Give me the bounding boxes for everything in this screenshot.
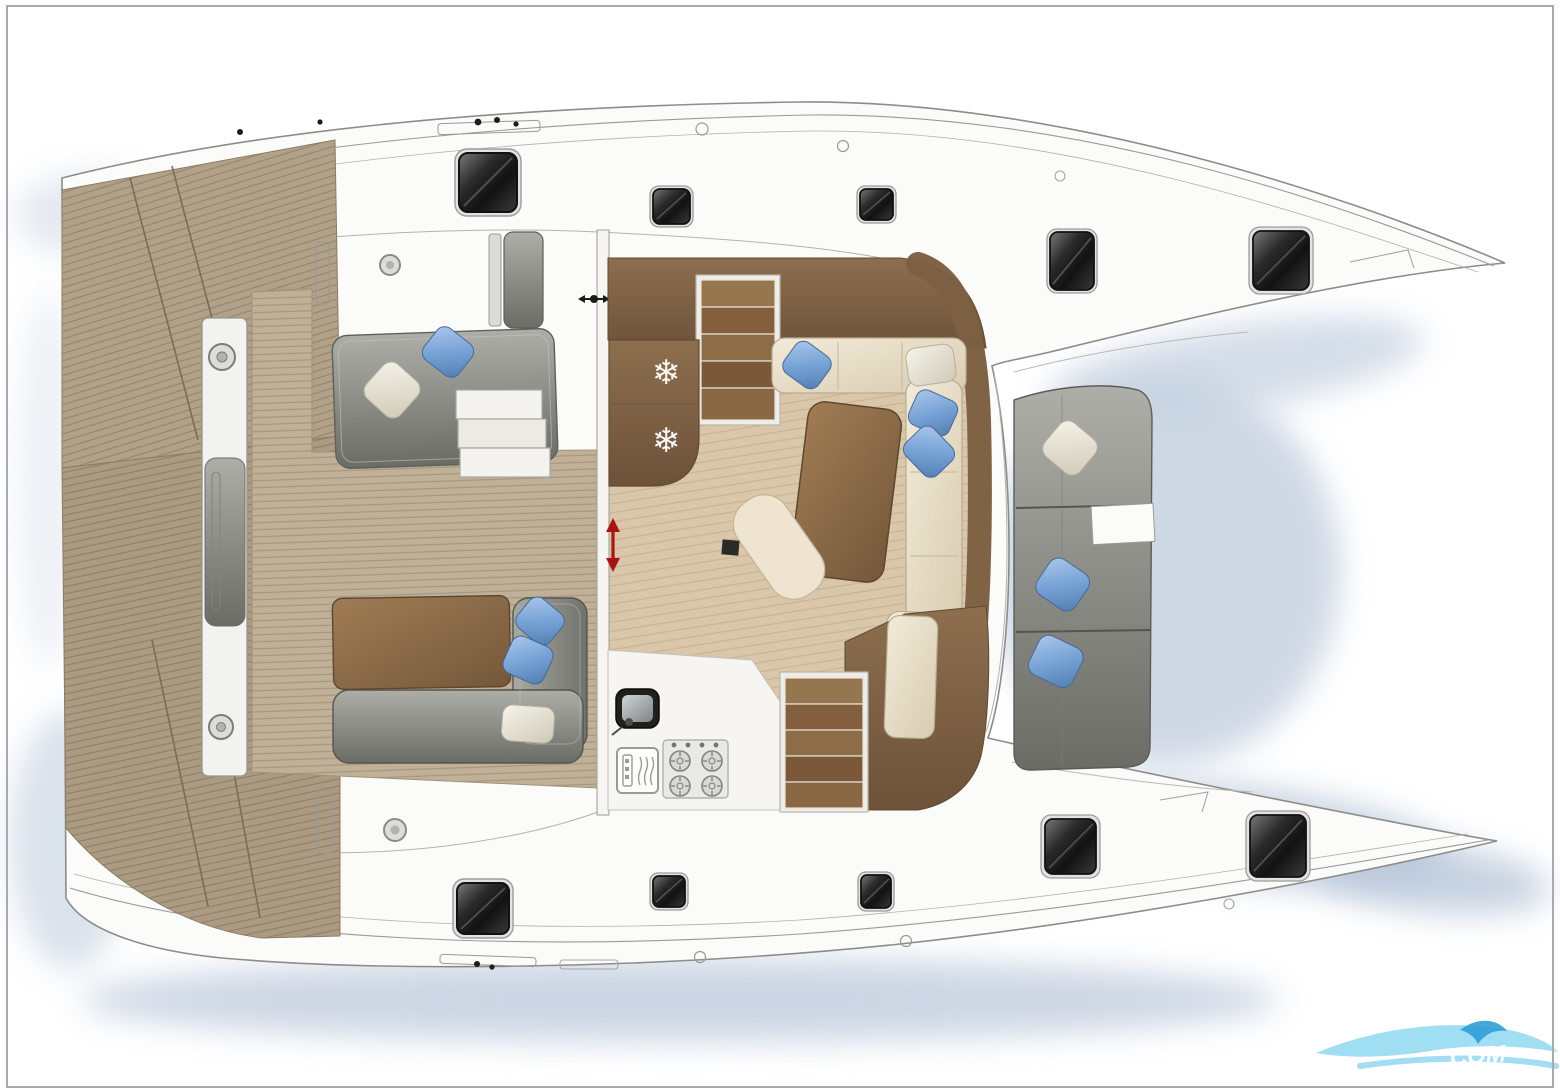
shadow-bottom-hull <box>80 958 1280 1042</box>
helm-bench-cushion <box>504 232 543 328</box>
hatch-window <box>1246 811 1310 881</box>
saloon-lower-bench <box>884 615 938 739</box>
hatch-window <box>857 186 896 223</box>
cockpit-table <box>332 595 511 689</box>
stove-burner-icon <box>702 776 722 796</box>
deck-hatch-ring-bottom <box>384 819 406 841</box>
floor-plan-drawing: Catamaran deck and saloon floor plan (to… <box>0 0 1560 1092</box>
cleat-dot <box>475 119 482 126</box>
cleat-dot <box>237 129 243 135</box>
beam-fitting-bottom <box>209 715 233 739</box>
floor-plan-page: Catamaran deck and saloon floor plan (to… <box>0 0 1560 1092</box>
cleat-dot <box>494 117 500 123</box>
hatch-window <box>1047 229 1097 293</box>
deck-hatch-ring-top <box>380 255 400 275</box>
beam-fitting-top <box>209 344 235 370</box>
cleat-dot <box>474 961 480 967</box>
wave-logo-icon <box>1316 1025 1558 1057</box>
stove-burner-icon <box>670 776 690 796</box>
hatch-window <box>650 873 688 910</box>
white-pillow <box>905 343 958 387</box>
hatch-window <box>650 186 693 227</box>
hatch-window <box>1041 815 1100 878</box>
hatch-window <box>858 872 894 911</box>
cleat-dot <box>317 119 322 124</box>
table-floor-mount <box>721 539 739 555</box>
white-pillow <box>501 704 555 744</box>
seat-notch <box>1091 503 1155 544</box>
stairs-starboard <box>780 672 868 812</box>
stove-burner-icon <box>702 751 722 771</box>
hatch-window <box>1249 227 1313 294</box>
snowflake-icon: ❄ <box>652 353 681 393</box>
stairs-port <box>696 275 780 425</box>
snowflake-icon: ❄ <box>652 421 681 461</box>
saloon: ❄ ❄ <box>578 230 1007 815</box>
helm-bench-base <box>489 234 501 326</box>
oven-icon <box>617 748 658 793</box>
watermark: COM <box>1316 1021 1558 1072</box>
beam-pad <box>205 458 245 626</box>
stove-burner-icon <box>670 751 690 771</box>
cleat-dot <box>513 121 518 126</box>
deck-ring <box>1224 899 1234 909</box>
cleat-dot <box>489 964 494 969</box>
watermark-text: COM <box>1449 1040 1508 1071</box>
hatch-window <box>455 149 521 216</box>
sink-icon <box>612 689 659 735</box>
saloon-front-wall <box>597 230 609 815</box>
forward-seating <box>1014 386 1155 770</box>
cockpit-steps <box>456 390 550 477</box>
stove-icon <box>663 740 728 798</box>
hatch-window <box>453 879 513 938</box>
